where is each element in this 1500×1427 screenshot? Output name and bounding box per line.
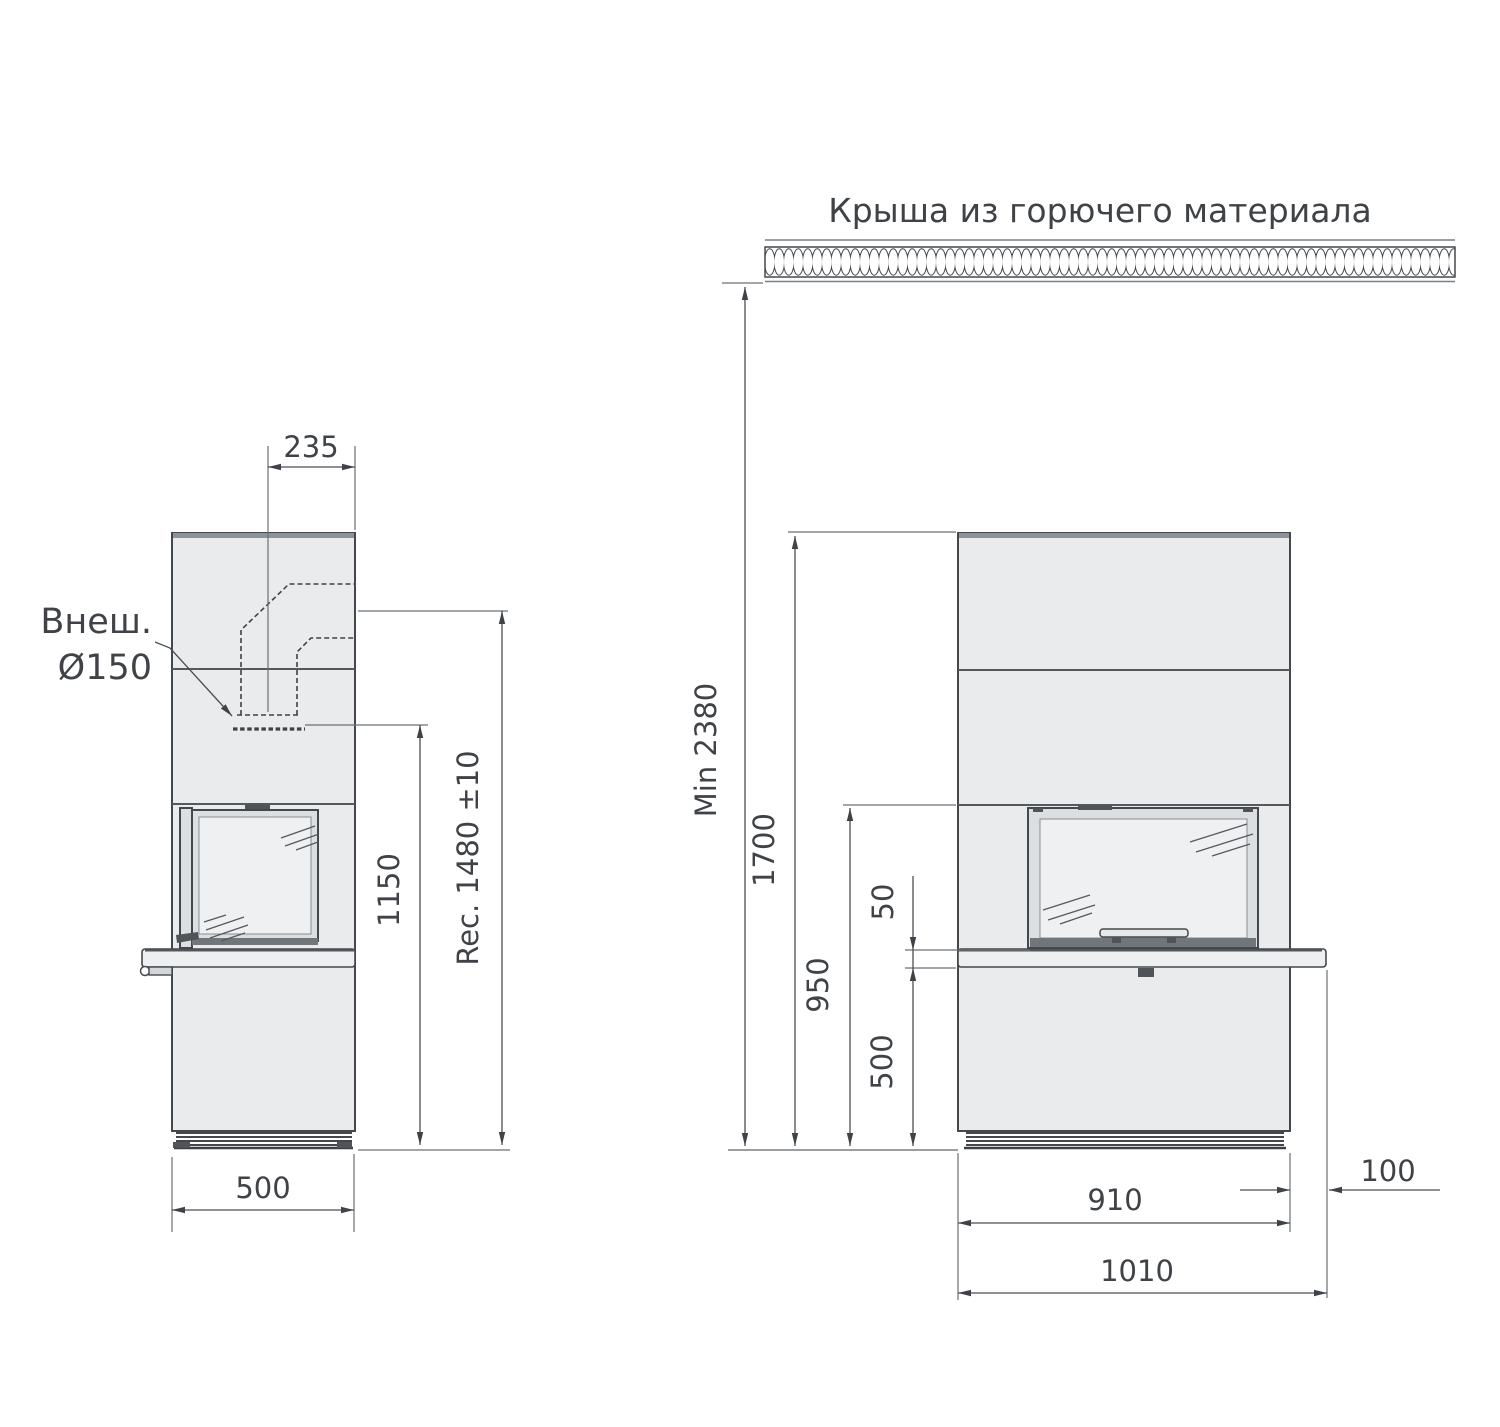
dim-text-min-2380: Min 2380 — [689, 683, 723, 817]
dimension-opening-top-950: 950 — [801, 805, 956, 1146]
dim-text-500-depth: 500 — [235, 1171, 290, 1205]
flue-label-line2: Ø150 — [58, 648, 152, 688]
door-sill — [192, 938, 318, 945]
side-view-firebox-door — [176, 805, 319, 948]
front-view-base-plinth — [964, 1133, 1286, 1148]
base-foot-left — [173, 1142, 190, 1148]
frame-tab-left — [1033, 808, 1043, 812]
door-handle-bar — [1100, 929, 1188, 937]
front-view-firebox-door — [1028, 805, 1258, 948]
ceiling-assembly: Крыша из горючего материала — [765, 191, 1455, 282]
roof-material-title: Крыша из горючего материала — [828, 191, 1371, 230]
dim-text-50: 50 — [866, 884, 900, 921]
bench-latch-knob — [141, 967, 150, 976]
dim-text-rec-1480: Rec. 1480 ±10 — [451, 750, 485, 965]
dim-text-1010: 1010 — [1100, 1254, 1174, 1288]
door-top-tab — [245, 805, 270, 809]
dim-text-950: 950 — [801, 957, 835, 1012]
dim-text-500-height: 500 — [865, 1034, 899, 1089]
frame-tab-center — [1078, 805, 1112, 810]
dim-text-910: 910 — [1087, 1183, 1142, 1217]
bench-top-front — [958, 949, 1326, 967]
dim-text-1700: 1700 — [747, 813, 781, 887]
fireplace-dimension-drawing: Крыша из горючего материала — [0, 0, 1500, 1427]
bench-top-side — [142, 949, 355, 967]
ceiling-insulation-hatch — [765, 247, 1455, 277]
flue-label-line1: Внеш. — [40, 602, 152, 642]
side-view-base-plinth — [173, 1133, 353, 1148]
dim-text-235: 235 — [283, 430, 338, 464]
base-foot-right — [337, 1142, 352, 1148]
front-view-drawing: Min 2380 1700 950 50 500 — [689, 283, 1440, 1300]
dimension-depth-500: 500 — [172, 1154, 354, 1232]
dimension-bench-height-500: 500 — [865, 968, 913, 1146]
side-view-top-cap — [173, 533, 354, 538]
door-edge-strip — [180, 808, 192, 948]
dimension-bench-overhang-100: 100 — [1240, 1154, 1440, 1190]
dimension-ceiling-clearance-2380: Min 2380 — [689, 283, 763, 1146]
front-view-top-cap — [959, 533, 1289, 538]
technical-drawing-page: Крыша из горючего материала — [0, 0, 1500, 1427]
handle-clip-right — [1167, 937, 1176, 943]
side-view-drawing: Внеш. Ø150 235 1150 Rec. 1480 ±10 — [40, 430, 510, 1232]
frame-tab-right — [1243, 808, 1253, 812]
dim-text-1150: 1150 — [372, 853, 406, 927]
bench-latch — [1138, 968, 1154, 977]
dimension-body-height-1700: 1700 — [747, 532, 956, 1146]
dim-text-100: 100 — [1360, 1154, 1415, 1188]
door-glass — [199, 817, 311, 934]
bench-latch-bracket — [149, 967, 172, 975]
dimension-flue-offset-235: 235 — [268, 430, 355, 530]
handle-clip-left — [1112, 937, 1121, 943]
firebox-sill — [1030, 938, 1256, 947]
